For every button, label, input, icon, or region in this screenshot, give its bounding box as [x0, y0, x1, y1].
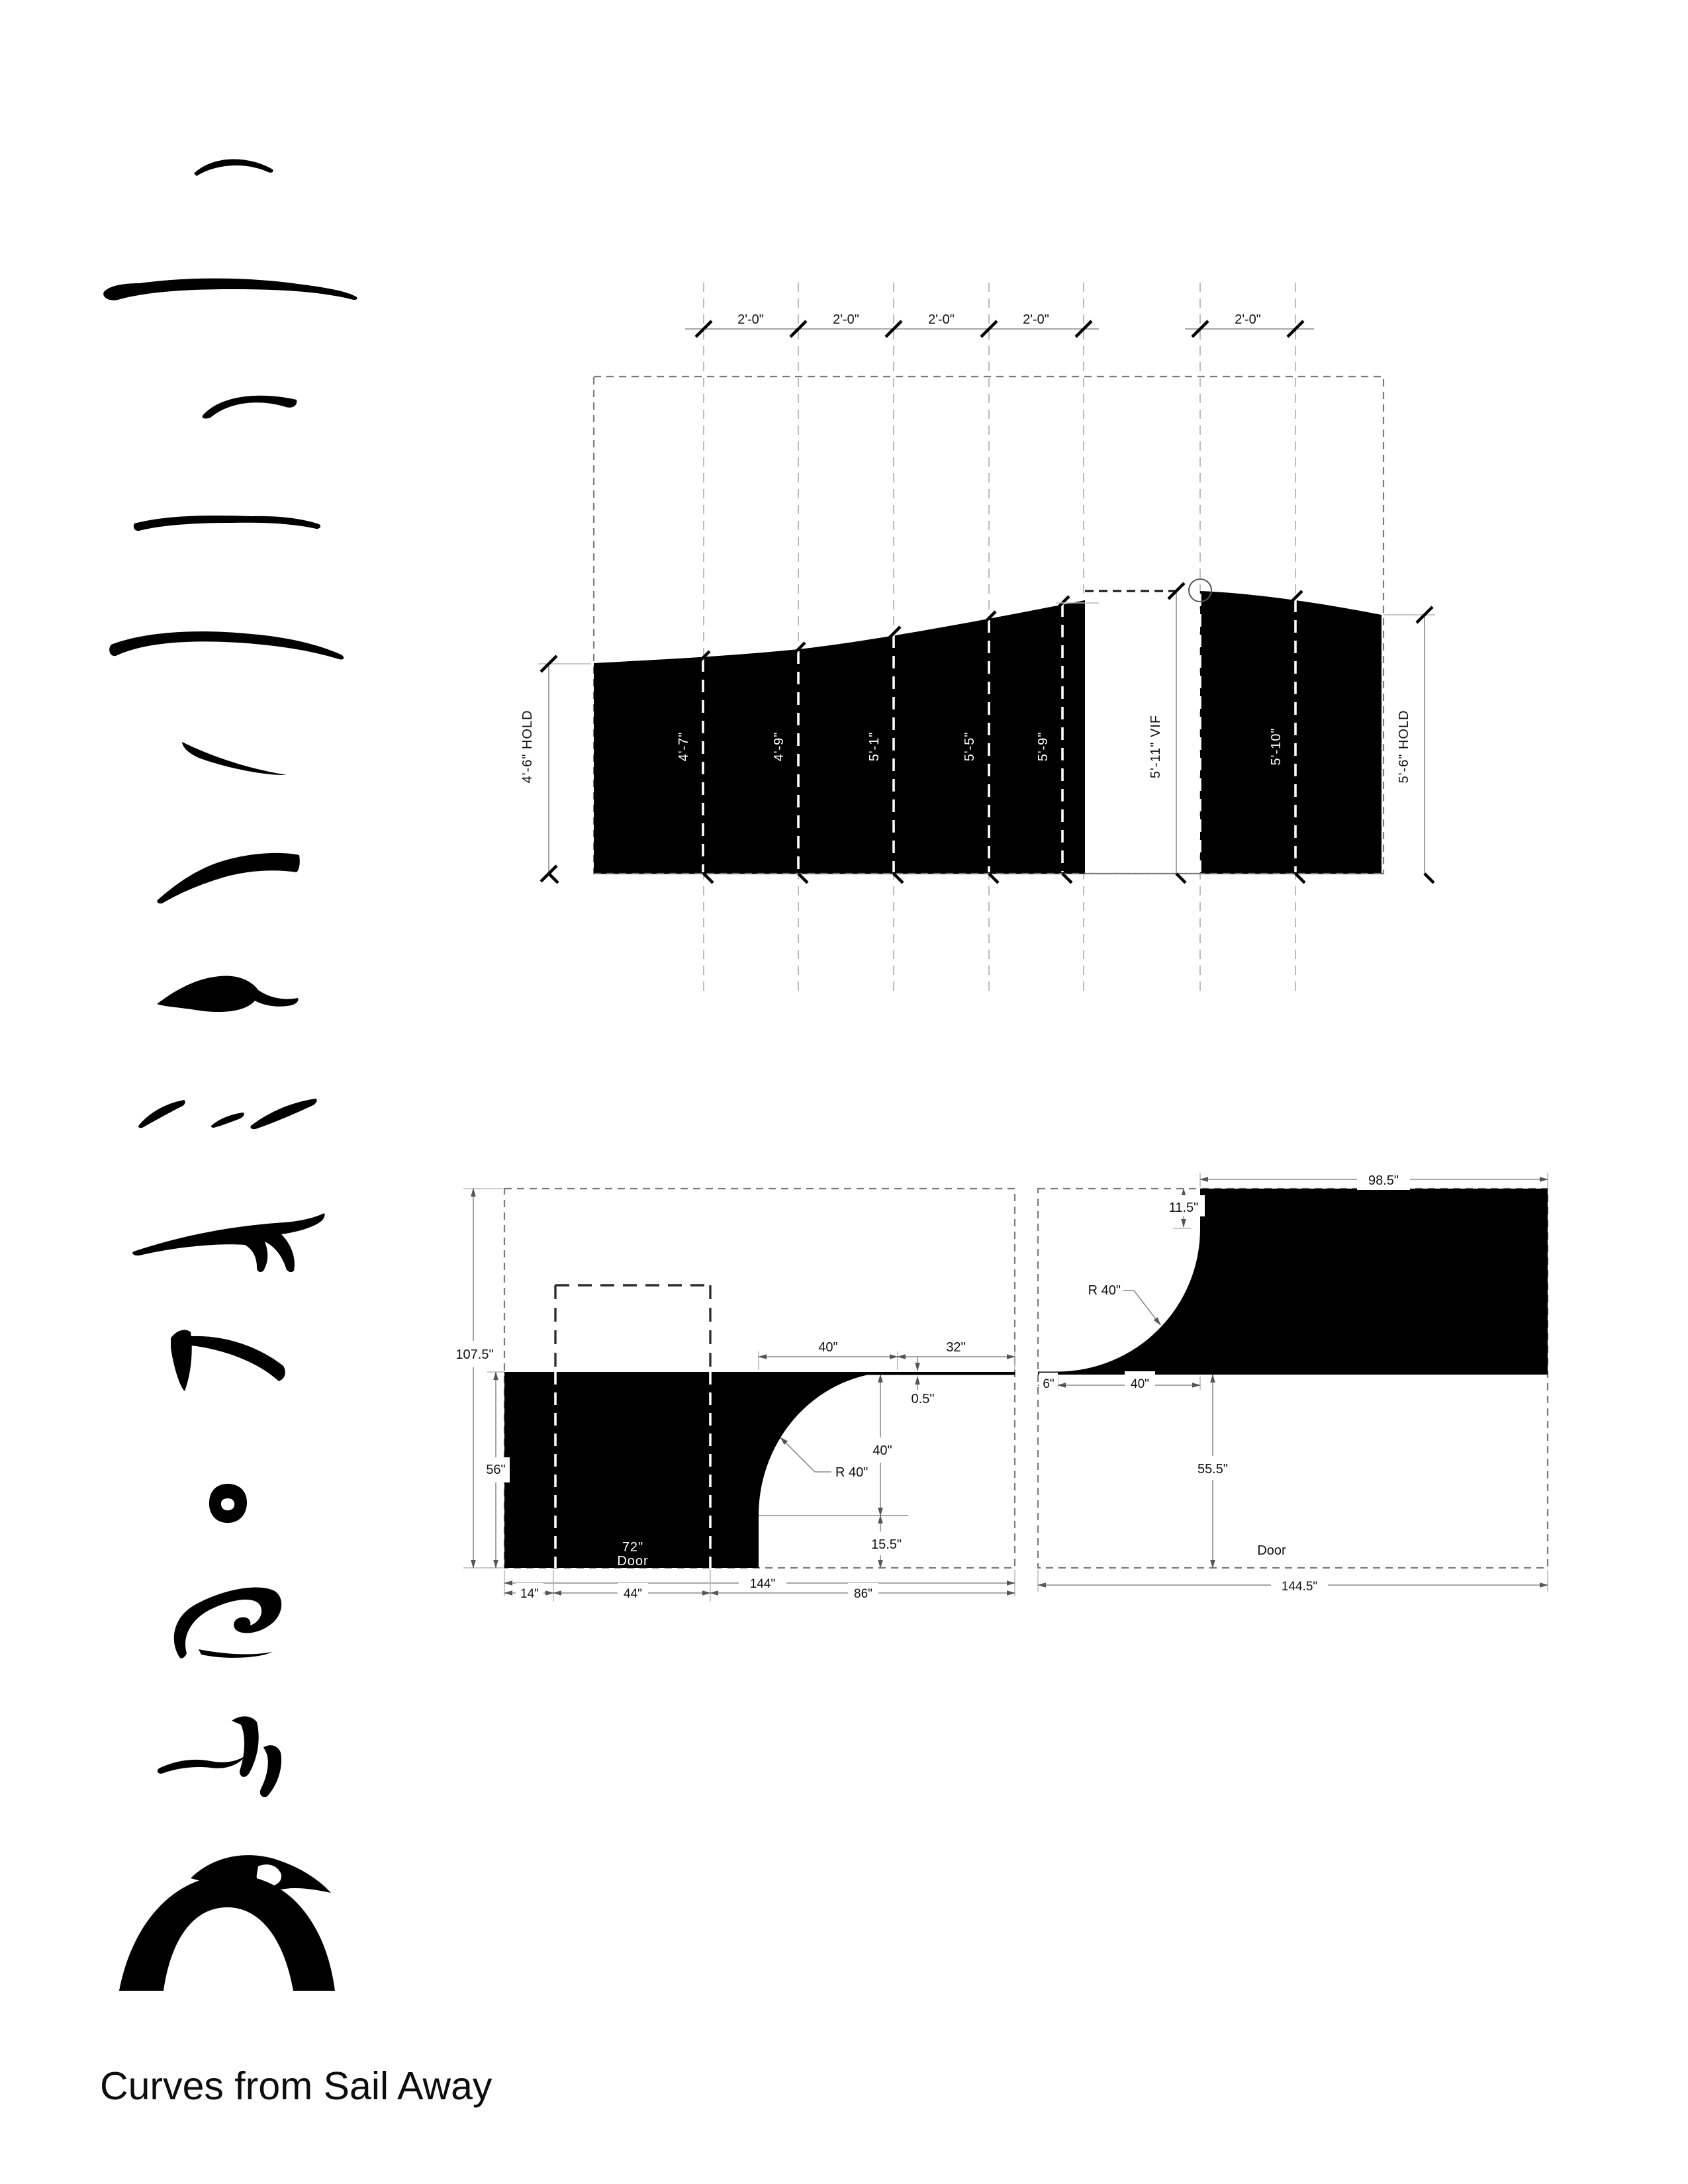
strip-b-label: 40" — [1131, 1377, 1149, 1391]
height-label-right-panel: 5'-10" — [1269, 728, 1284, 766]
baseline-tick — [1176, 874, 1186, 883]
baseline-tick — [798, 874, 808, 883]
radius-label: R 40" — [1088, 1283, 1121, 1298]
counter-body — [1038, 1189, 1548, 1375]
left-hold-dimension: 4'-6" HOLD — [520, 656, 591, 882]
baseline-tick — [704, 874, 713, 883]
brush-stroke-6 — [182, 742, 287, 775]
brush-stroke-3 — [203, 396, 297, 419]
top-width-a-label: 40" — [818, 1340, 837, 1355]
top-width-dimension: 98.5" — [1200, 1167, 1548, 1190]
bay-width-label: 2'-0" — [833, 312, 859, 327]
elevation-baseline — [549, 874, 1434, 883]
baseline-tick — [1425, 874, 1434, 883]
curve-height-dimension: 40" — [867, 1375, 896, 1516]
door-label: Door — [1257, 1543, 1286, 1558]
bay-width-label: 2'-0" — [737, 312, 764, 327]
baseline-tick — [1062, 874, 1072, 883]
segment-c-label: 86" — [854, 1587, 872, 1601]
top-width-dimensions: 40" 32" — [759, 1340, 1015, 1370]
radius-callout: R 40" — [780, 1437, 868, 1480]
bay-dimension-row: 2'-0" 2'-0" 2'-0" 2'-0" 2'-0" — [685, 312, 1314, 337]
leader-line — [1134, 1291, 1160, 1325]
brush-stroke-13 — [171, 1330, 285, 1391]
top-width-b-label: 32" — [946, 1340, 965, 1355]
left-hold-label: 4'-6" HOLD — [520, 710, 535, 784]
vif-dimension: 5'-11" VIF — [1149, 583, 1184, 874]
top-width-label: 98.5" — [1368, 1173, 1399, 1188]
segment-a-label: 14" — [520, 1587, 539, 1601]
elevation-left-panel — [594, 600, 1085, 874]
height-label: 5'-5" — [962, 732, 977, 762]
brush-stroke-5 — [109, 631, 344, 659]
plan-right-drawing: 98.5" 11.5" R 40" 6" 40" — [1038, 1167, 1548, 1596]
right-hold-label: 5'-6" HOLD — [1397, 710, 1411, 784]
brush-stroke-17 — [119, 1875, 335, 1991]
curve-height-label: 40" — [872, 1443, 892, 1458]
door-clearance-dimension: 55.5" — [1192, 1375, 1234, 1568]
leader-line — [780, 1437, 815, 1472]
strip-a-label: 6" — [1043, 1377, 1054, 1391]
bottom-inset-dimension: 15.5" — [759, 1516, 908, 1568]
segment-b-label: 44" — [624, 1587, 642, 1601]
calligraphy-strokes — [103, 159, 357, 1991]
brush-stroke-1 — [194, 159, 273, 176]
baseline-tick — [549, 874, 558, 883]
radius-label: R 40" — [835, 1465, 868, 1480]
corner-drop-label: 11.5" — [1169, 1201, 1199, 1215]
corner-drop-dimension: 11.5" — [1161, 1189, 1205, 1228]
overall-height-label: 107.5" — [455, 1347, 493, 1362]
bay-width-label: 2'-0" — [928, 312, 955, 327]
drawing-sheet: 2'-0" 2'-0" 2'-0" 2'-0" 2'-0" 4'-7" 4'-9… — [0, 0, 1688, 2184]
plan-left-drawing: 72" Door 107.5" 56" 40" 32" — [454, 1189, 1015, 1603]
brush-stroke-11 — [250, 1099, 316, 1129]
brush-stroke-8 — [157, 976, 299, 1013]
bay-width-label: 2'-0" — [1235, 312, 1261, 327]
bay-width-label: 2'-0" — [1023, 312, 1049, 327]
counter-depth-label: 56" — [486, 1463, 505, 1477]
brush-stroke-12 — [132, 1213, 324, 1272]
height-label: 5'-1" — [867, 732, 882, 762]
height-label: 4'-7" — [677, 732, 691, 762]
bottom-inset-label: 15.5" — [871, 1537, 902, 1552]
brush-stroke-9 — [138, 1100, 185, 1128]
brush-stroke-16 — [158, 1716, 281, 1797]
height-label: 4'-9" — [772, 732, 786, 762]
overall-width-dimension: 144" — [504, 1570, 1015, 1596]
door-width-label: 72" — [622, 1540, 643, 1555]
overall-width-label: 144" — [750, 1577, 775, 1591]
baseline-tick — [989, 874, 998, 883]
page-title: Curves from Sail Away — [100, 2064, 492, 2109]
elevation-drawing: 2'-0" 2'-0" 2'-0" 2'-0" 2'-0" 4'-7" 4'-9… — [520, 283, 1435, 993]
edge-thickness-label: 0.5" — [912, 1392, 935, 1406]
brush-stroke-15 — [174, 1587, 281, 1658]
brush-stroke-4 — [134, 516, 320, 531]
brush-stroke-2 — [103, 279, 357, 300]
right-hold-dimension: 5'-6" HOLD — [1383, 607, 1435, 874]
baseline-tick — [1295, 874, 1305, 883]
door-label: Door — [617, 1554, 648, 1569]
brush-stroke-14 — [209, 1484, 247, 1523]
height-label: 5'-9" — [1036, 732, 1051, 762]
overall-width-dimension: 144.5" — [1038, 1570, 1548, 1596]
brush-stroke-10 — [211, 1113, 244, 1128]
vif-label: 5'-11" VIF — [1149, 715, 1163, 778]
baseline-tick — [894, 874, 903, 883]
brush-stroke-7 — [157, 853, 299, 903]
overall-width-label: 144.5" — [1282, 1580, 1317, 1594]
door-clearance-label: 55.5" — [1197, 1462, 1228, 1477]
radius-callout: R 40" — [1088, 1283, 1160, 1325]
elevation-right-panel — [1200, 591, 1382, 874]
edge-thickness-dimension: 0.5" — [912, 1357, 935, 1406]
